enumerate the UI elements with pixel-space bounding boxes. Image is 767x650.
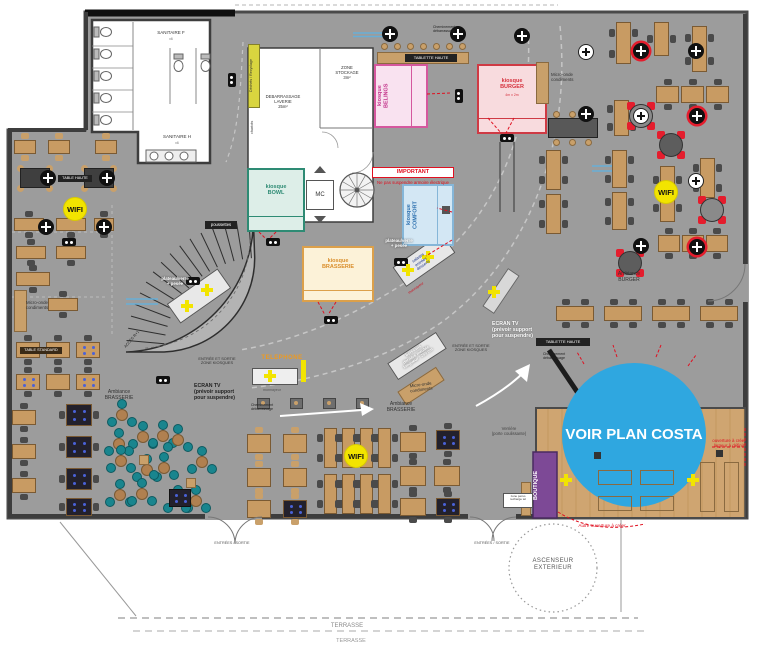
furniture	[653, 204, 659, 212]
furniture	[20, 437, 28, 443]
furniture	[66, 404, 92, 426]
furniture	[59, 312, 67, 318]
furniture	[283, 500, 307, 518]
furniture	[594, 452, 601, 459]
furniture	[299, 505, 302, 508]
furniture	[353, 480, 359, 488]
furniture	[84, 391, 92, 397]
column-marker	[578, 44, 594, 60]
wifi-badge-right: WIFI	[654, 180, 678, 204]
furniture	[444, 517, 452, 523]
furniture	[706, 86, 729, 103]
furniture	[147, 496, 157, 506]
furniture	[291, 454, 299, 460]
furniture	[409, 517, 417, 523]
label-micro-onde-right: Micro-onde condiments	[551, 72, 593, 82]
furniture	[724, 462, 739, 512]
column-marker	[40, 170, 56, 186]
furniture	[255, 454, 263, 460]
furniture	[76, 342, 100, 358]
furniture	[392, 454, 398, 462]
furniture	[317, 454, 323, 462]
label-tablette-haute-top: TABLETTE HAUTE	[405, 54, 457, 62]
furniture	[73, 418, 76, 421]
furniture	[689, 79, 697, 85]
furniture	[27, 239, 35, 245]
furniture	[452, 509, 455, 512]
furniture	[20, 426, 28, 432]
furniture	[290, 511, 293, 514]
furniture	[553, 111, 560, 118]
furniture	[647, 35, 653, 43]
label-debarrassage: DEBARRASSAGE LAVERIE 25m²	[252, 95, 314, 109]
furniture	[299, 511, 302, 514]
furniture	[632, 29, 638, 37]
kiosk-comfort-counter	[437, 184, 438, 246]
furniture	[420, 43, 427, 50]
furniture	[434, 466, 460, 486]
furniture	[55, 155, 63, 161]
furniture	[23, 384, 26, 387]
kiosk-brasserie-counter	[302, 290, 374, 291]
label-entrees-sortie-left: ENTRÉES / SORTIE	[200, 541, 264, 545]
furniture	[115, 455, 127, 467]
furniture	[46, 374, 70, 390]
furniture	[83, 418, 86, 421]
furniture	[106, 463, 116, 473]
furniture	[158, 462, 170, 474]
column-marker	[382, 26, 398, 42]
furniture	[609, 29, 615, 37]
label-ecran-tv-left: ECRAN TV (prévoir support pour suspendre…	[194, 384, 254, 402]
furniture	[127, 417, 137, 427]
column-marker	[633, 238, 649, 254]
furniture	[658, 235, 680, 252]
label-kiosk-burger: kiosque BURGER	[477, 78, 547, 91]
furniture	[335, 454, 341, 462]
label-kiosk-belings: kiosque BELINGS	[377, 66, 409, 126]
column-marker	[688, 43, 704, 59]
outlet-marker	[324, 316, 338, 324]
furniture	[255, 461, 263, 467]
label-zone-perso: zone perso recharge tel	[503, 495, 533, 502]
furniture	[283, 434, 307, 453]
furniture	[605, 217, 611, 225]
furniture	[381, 43, 388, 50]
furniture	[283, 468, 307, 487]
furniture	[59, 475, 65, 483]
furniture	[628, 175, 634, 183]
furniture	[255, 519, 263, 525]
furniture	[190, 495, 202, 507]
furniture	[562, 322, 570, 328]
label-cheminement-right: Cheminement débarrassage	[534, 352, 574, 360]
furniture	[714, 104, 722, 110]
furniture	[452, 503, 455, 506]
furniture	[317, 480, 323, 488]
furniture	[562, 220, 568, 228]
furniture	[446, 43, 453, 50]
furniture	[562, 299, 570, 305]
furniture	[677, 322, 685, 328]
plus-marker	[687, 474, 699, 486]
wifi-badge-left: WIFI	[63, 197, 87, 221]
furniture	[539, 200, 545, 208]
furniture	[247, 500, 271, 518]
furniture	[409, 425, 417, 431]
furniture	[247, 434, 271, 453]
furniture	[598, 470, 632, 485]
furniture	[14, 140, 36, 154]
furniture	[665, 253, 673, 259]
furniture	[562, 176, 568, 184]
furniture	[546, 194, 561, 234]
furniture	[25, 211, 33, 217]
furniture	[553, 139, 560, 146]
furniture	[725, 322, 733, 328]
furniture	[607, 105, 613, 113]
furniture	[612, 192, 627, 230]
outlet-marker	[266, 238, 280, 246]
label-chariots: chariots	[250, 110, 258, 144]
furniture	[685, 57, 691, 65]
furniture	[290, 505, 293, 508]
column-marker	[38, 219, 54, 235]
label-dechets: Déchets / Recyclage	[249, 45, 259, 107]
furniture	[327, 401, 331, 405]
column-marker	[689, 108, 705, 124]
furniture	[706, 322, 714, 328]
furniture	[197, 446, 207, 456]
furniture	[207, 464, 217, 474]
furniture	[54, 359, 62, 365]
label-verriere: Verrière (porte coulissante)	[484, 427, 534, 437]
furniture	[169, 470, 179, 480]
furniture	[360, 401, 364, 405]
label-table-standard: TABLE STANDARD	[20, 347, 62, 354]
furniture	[676, 176, 682, 184]
furniture	[55, 133, 63, 139]
furniture	[76, 374, 100, 390]
label-sanitaire-h-sub: x6	[146, 141, 208, 145]
furniture	[725, 299, 733, 305]
furniture	[654, 22, 669, 56]
furniture	[201, 503, 211, 513]
furniture	[640, 496, 674, 511]
furniture	[83, 384, 86, 387]
furniture	[148, 438, 158, 448]
furniture	[585, 139, 592, 146]
furniture	[12, 478, 36, 493]
furniture	[378, 428, 391, 468]
furniture	[539, 220, 545, 228]
furniture	[95, 140, 117, 154]
furniture	[605, 198, 611, 206]
furniture	[658, 299, 666, 305]
furniture	[539, 176, 545, 184]
furniture	[604, 306, 642, 321]
furniture	[24, 359, 32, 365]
kiosk-brasserie	[302, 246, 374, 302]
label-ambiance-brasserie-left: Ambiance BRASSERIE	[96, 390, 142, 402]
furniture	[83, 450, 86, 453]
furniture	[392, 434, 398, 442]
label-entree-zone-left: ENTRÉE ET SORTIE ZONE KIOSQUES	[194, 357, 240, 366]
furniture	[713, 253, 721, 259]
furniture	[48, 140, 70, 154]
furniture	[114, 428, 124, 438]
furniture	[700, 462, 715, 512]
furniture	[443, 436, 446, 439]
furniture	[29, 287, 37, 293]
furniture	[247, 468, 271, 487]
furniture	[407, 43, 414, 50]
furniture	[66, 468, 92, 490]
furniture	[706, 235, 728, 252]
kiosk-bowl	[247, 168, 305, 232]
plus-marker	[488, 286, 500, 298]
furniture	[54, 367, 62, 373]
furniture	[400, 498, 426, 516]
furniture	[708, 34, 714, 42]
furniture	[676, 204, 682, 212]
label-kiosk-brasserie: kiosque BRASSERIE	[302, 258, 374, 271]
furniture	[659, 133, 683, 157]
furniture	[628, 198, 634, 206]
furniture	[677, 299, 685, 305]
furniture	[67, 260, 75, 266]
furniture	[12, 444, 36, 459]
furniture	[652, 306, 690, 321]
furniture	[92, 352, 95, 355]
furniture	[539, 156, 545, 164]
furniture	[569, 139, 576, 146]
furniture	[83, 482, 86, 485]
furniture	[16, 246, 46, 259]
furniture	[56, 246, 86, 259]
furniture	[689, 228, 697, 234]
furniture	[353, 434, 359, 442]
furniture	[664, 79, 672, 85]
furniture	[21, 133, 29, 139]
furniture	[353, 500, 359, 508]
furniture	[93, 443, 99, 451]
furniture	[291, 493, 299, 499]
plus-marker	[264, 370, 276, 382]
label-ambiance-burger: Ambiance BURGER	[606, 272, 652, 284]
furniture	[335, 500, 341, 508]
furniture	[84, 359, 92, 365]
furniture	[83, 352, 86, 355]
furniture	[137, 478, 147, 488]
column-marker	[633, 108, 649, 124]
furniture	[158, 420, 168, 430]
furniture	[105, 497, 115, 507]
telephone-strip	[301, 360, 306, 382]
furniture	[12, 410, 36, 425]
furniture	[59, 443, 65, 451]
furniture	[317, 434, 323, 442]
furniture	[169, 489, 191, 507]
furniture	[291, 461, 299, 467]
furniture	[378, 474, 391, 514]
furniture	[139, 455, 149, 465]
furniture	[186, 478, 196, 488]
furniture	[116, 409, 128, 421]
furniture	[581, 299, 589, 305]
furniture	[610, 299, 618, 305]
furniture	[607, 123, 613, 131]
column-marker	[99, 170, 115, 186]
label-micro-onde-left: Micro-onde condiments	[16, 300, 58, 310]
wifi-badge-center: WIFI	[344, 444, 368, 468]
furniture	[116, 445, 126, 455]
micro-onde-counter-left	[14, 290, 27, 332]
label-terrasse-2: TERRASSE	[326, 638, 376, 644]
outlet-marker	[156, 376, 170, 384]
column-marker	[689, 239, 705, 255]
furniture	[409, 459, 417, 465]
furniture	[16, 374, 40, 390]
label-autre-ouverture: Autre ouverture à créer	[556, 523, 648, 528]
furniture	[84, 335, 92, 341]
kiosk-bowl-counter	[247, 216, 305, 217]
furniture	[546, 150, 561, 190]
furniture	[54, 335, 62, 341]
label-important: IMPORTANT	[372, 169, 454, 175]
furniture	[556, 306, 594, 321]
furniture	[685, 34, 691, 42]
furniture	[294, 401, 298, 405]
furniture	[629, 322, 637, 328]
furniture	[24, 391, 32, 397]
furniture	[700, 198, 724, 222]
furniture	[100, 211, 108, 217]
label-kiosk-comfort: kiosque COMFORT	[406, 187, 434, 243]
furniture	[394, 43, 401, 50]
furniture	[400, 432, 426, 452]
label-costa: VOIR PLAN COSTA	[562, 426, 706, 443]
furniture	[708, 57, 714, 65]
plus-marker	[201, 284, 213, 296]
furniture	[73, 482, 76, 485]
outlet-marker	[455, 89, 463, 103]
label-ecran-tv-right: ECRAN TV (prévoir support pour suspendre…	[492, 322, 552, 340]
furniture	[548, 118, 598, 138]
furniture	[138, 421, 148, 431]
furniture	[24, 335, 32, 341]
label-ambiance-brasserie-right: Ambiance BRASSERIE	[378, 402, 424, 414]
label-entree-zone-right: ENTRÉE ET SORTIE ZONE KIOSQUES	[448, 344, 494, 353]
furniture	[664, 104, 672, 110]
label-mc: MC	[306, 180, 334, 210]
floor-plan: SANITAIRE F x6 SANITAIRE H x6 DEBARRASSA…	[0, 0, 767, 650]
plus-marker	[560, 474, 572, 486]
label-sanitaire-f: SANITAIRE F	[140, 30, 202, 35]
furniture	[433, 43, 440, 50]
label-ascenseur: ASCENSEUR EXTERIEUR	[505, 558, 601, 572]
furniture	[605, 156, 611, 164]
furniture	[581, 322, 589, 328]
furniture	[184, 494, 187, 497]
furniture	[700, 306, 738, 321]
column-marker	[514, 28, 530, 44]
furniture	[92, 384, 95, 387]
label-monnayeur-gray: monnayeur	[254, 388, 290, 392]
furniture	[444, 451, 452, 457]
furniture	[714, 79, 722, 85]
furniture	[157, 430, 169, 442]
furniture	[693, 164, 699, 172]
furniture	[612, 150, 627, 188]
furniture	[66, 498, 92, 516]
furniture	[104, 446, 114, 456]
column-marker	[633, 43, 649, 59]
label-plateau-left: plateau/verre + pesée	[152, 276, 198, 286]
furniture	[616, 22, 631, 64]
plus-marker	[181, 300, 193, 312]
label-entrees-sortie-right: ENTRÉES / SORTIE	[460, 541, 524, 545]
label-terrasse-1: TERRASSE	[322, 623, 372, 630]
furniture	[716, 184, 722, 192]
furniture	[392, 480, 398, 488]
furniture	[605, 175, 611, 183]
furniture	[187, 464, 197, 474]
furniture	[452, 436, 455, 439]
furniture	[716, 164, 722, 172]
furniture	[656, 86, 679, 103]
furniture	[665, 228, 673, 234]
furniture	[196, 456, 208, 468]
furniture	[114, 489, 126, 501]
furniture	[371, 434, 377, 442]
furniture	[562, 200, 568, 208]
furniture	[569, 111, 576, 118]
furniture	[716, 450, 723, 457]
outlet-marker	[500, 134, 514, 142]
column-marker	[578, 106, 594, 122]
furniture	[400, 466, 426, 486]
furniture	[609, 50, 615, 58]
furniture	[184, 500, 187, 503]
furniture	[54, 391, 62, 397]
furniture	[59, 411, 65, 419]
furniture	[459, 43, 466, 50]
label-cheminement-top: Cheminement débarrassage	[424, 25, 464, 33]
furniture	[444, 491, 452, 497]
furniture	[317, 500, 323, 508]
furniture	[409, 491, 417, 497]
furniture	[93, 475, 99, 483]
furniture	[102, 155, 110, 161]
column-marker	[688, 173, 704, 189]
furniture	[628, 217, 634, 225]
kiosk-burger-counter	[477, 118, 547, 119]
furniture	[20, 460, 28, 466]
furniture	[59, 503, 65, 511]
furniture	[598, 496, 632, 511]
furniture	[640, 470, 674, 485]
furniture	[183, 442, 193, 452]
furniture	[172, 434, 184, 446]
furniture	[107, 417, 117, 427]
furniture	[443, 459, 451, 465]
kiosk-belings-counter	[411, 64, 412, 128]
furniture	[436, 430, 460, 450]
furniture	[706, 299, 714, 305]
furniture	[16, 272, 50, 286]
furniture	[24, 367, 32, 373]
